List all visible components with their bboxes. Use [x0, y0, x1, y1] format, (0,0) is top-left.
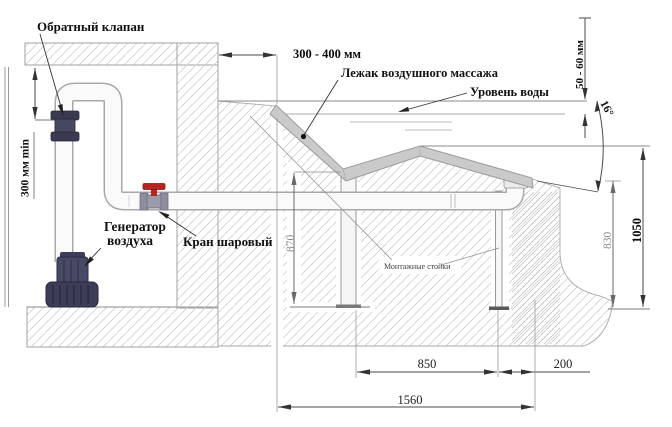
leader-arrowhead: [398, 107, 409, 112]
arrowhead: [219, 52, 232, 57]
dim-300min-text: 300 мм min: [20, 139, 32, 197]
arrowhead: [32, 68, 37, 80]
arrowhead: [357, 369, 370, 374]
check-valve: [51, 111, 79, 141]
label-air-generator-line1: Генератор: [104, 219, 166, 234]
bench-wall-strip-hatch: [512, 192, 560, 344]
arrowhead: [640, 295, 645, 307]
dim-200-text: 200: [554, 357, 573, 371]
dim-1050-text: 1050: [630, 218, 644, 243]
arrowhead: [484, 369, 497, 374]
ball-valve: [140, 184, 168, 211]
arrowhead: [521, 369, 534, 374]
dim-830-text: 830: [602, 232, 614, 250]
label-check-valve: Обратный клапан: [37, 19, 145, 34]
arrowhead: [640, 148, 645, 160]
floor-slab-hatch: [27, 307, 218, 347]
leader-lounger: [304, 80, 338, 135]
stand-1-base-plate: [336, 305, 361, 309]
diagram-canvas: Обратный клапан Генератор воздуха Кран ш…: [0, 0, 672, 427]
blower-lower-body: [46, 282, 98, 307]
dim-1560-text: 1560: [398, 393, 423, 407]
arrowhead: [32, 107, 37, 119]
arrowhead: [610, 181, 615, 193]
stand-2-base-plate: [489, 307, 509, 311]
label-ball-valve: Кран шаровый: [183, 234, 273, 249]
niche-wall-hatch: [177, 43, 218, 308]
dim-300-400-text: 300 - 400 мм: [293, 47, 362, 61]
arrowhead: [595, 180, 600, 191]
ball-valve-handle: [143, 184, 165, 190]
label-water-level: Уровень воды: [470, 85, 549, 99]
label-lounger: Лежак воздушного массажа: [341, 66, 499, 80]
arrowhead: [582, 114, 587, 126]
arrowhead: [521, 404, 534, 409]
arrowhead: [499, 369, 512, 374]
label-air-generator-line2: воздуха: [107, 233, 153, 248]
dim-850-text: 850: [418, 357, 437, 371]
arrowhead: [263, 52, 276, 57]
ball-valve-body: [147, 195, 161, 208]
leader-dot: [301, 134, 306, 139]
dim-50-60-text: 50 - 60 мм: [574, 40, 586, 89]
technical-diagram: Обратный клапан Генератор воздуха Кран ш…: [0, 0, 672, 427]
dim-870-text: 870: [285, 235, 297, 253]
label-mounting-stands: Монтажные стойки: [384, 262, 451, 271]
leader-water-level: [400, 93, 467, 112]
